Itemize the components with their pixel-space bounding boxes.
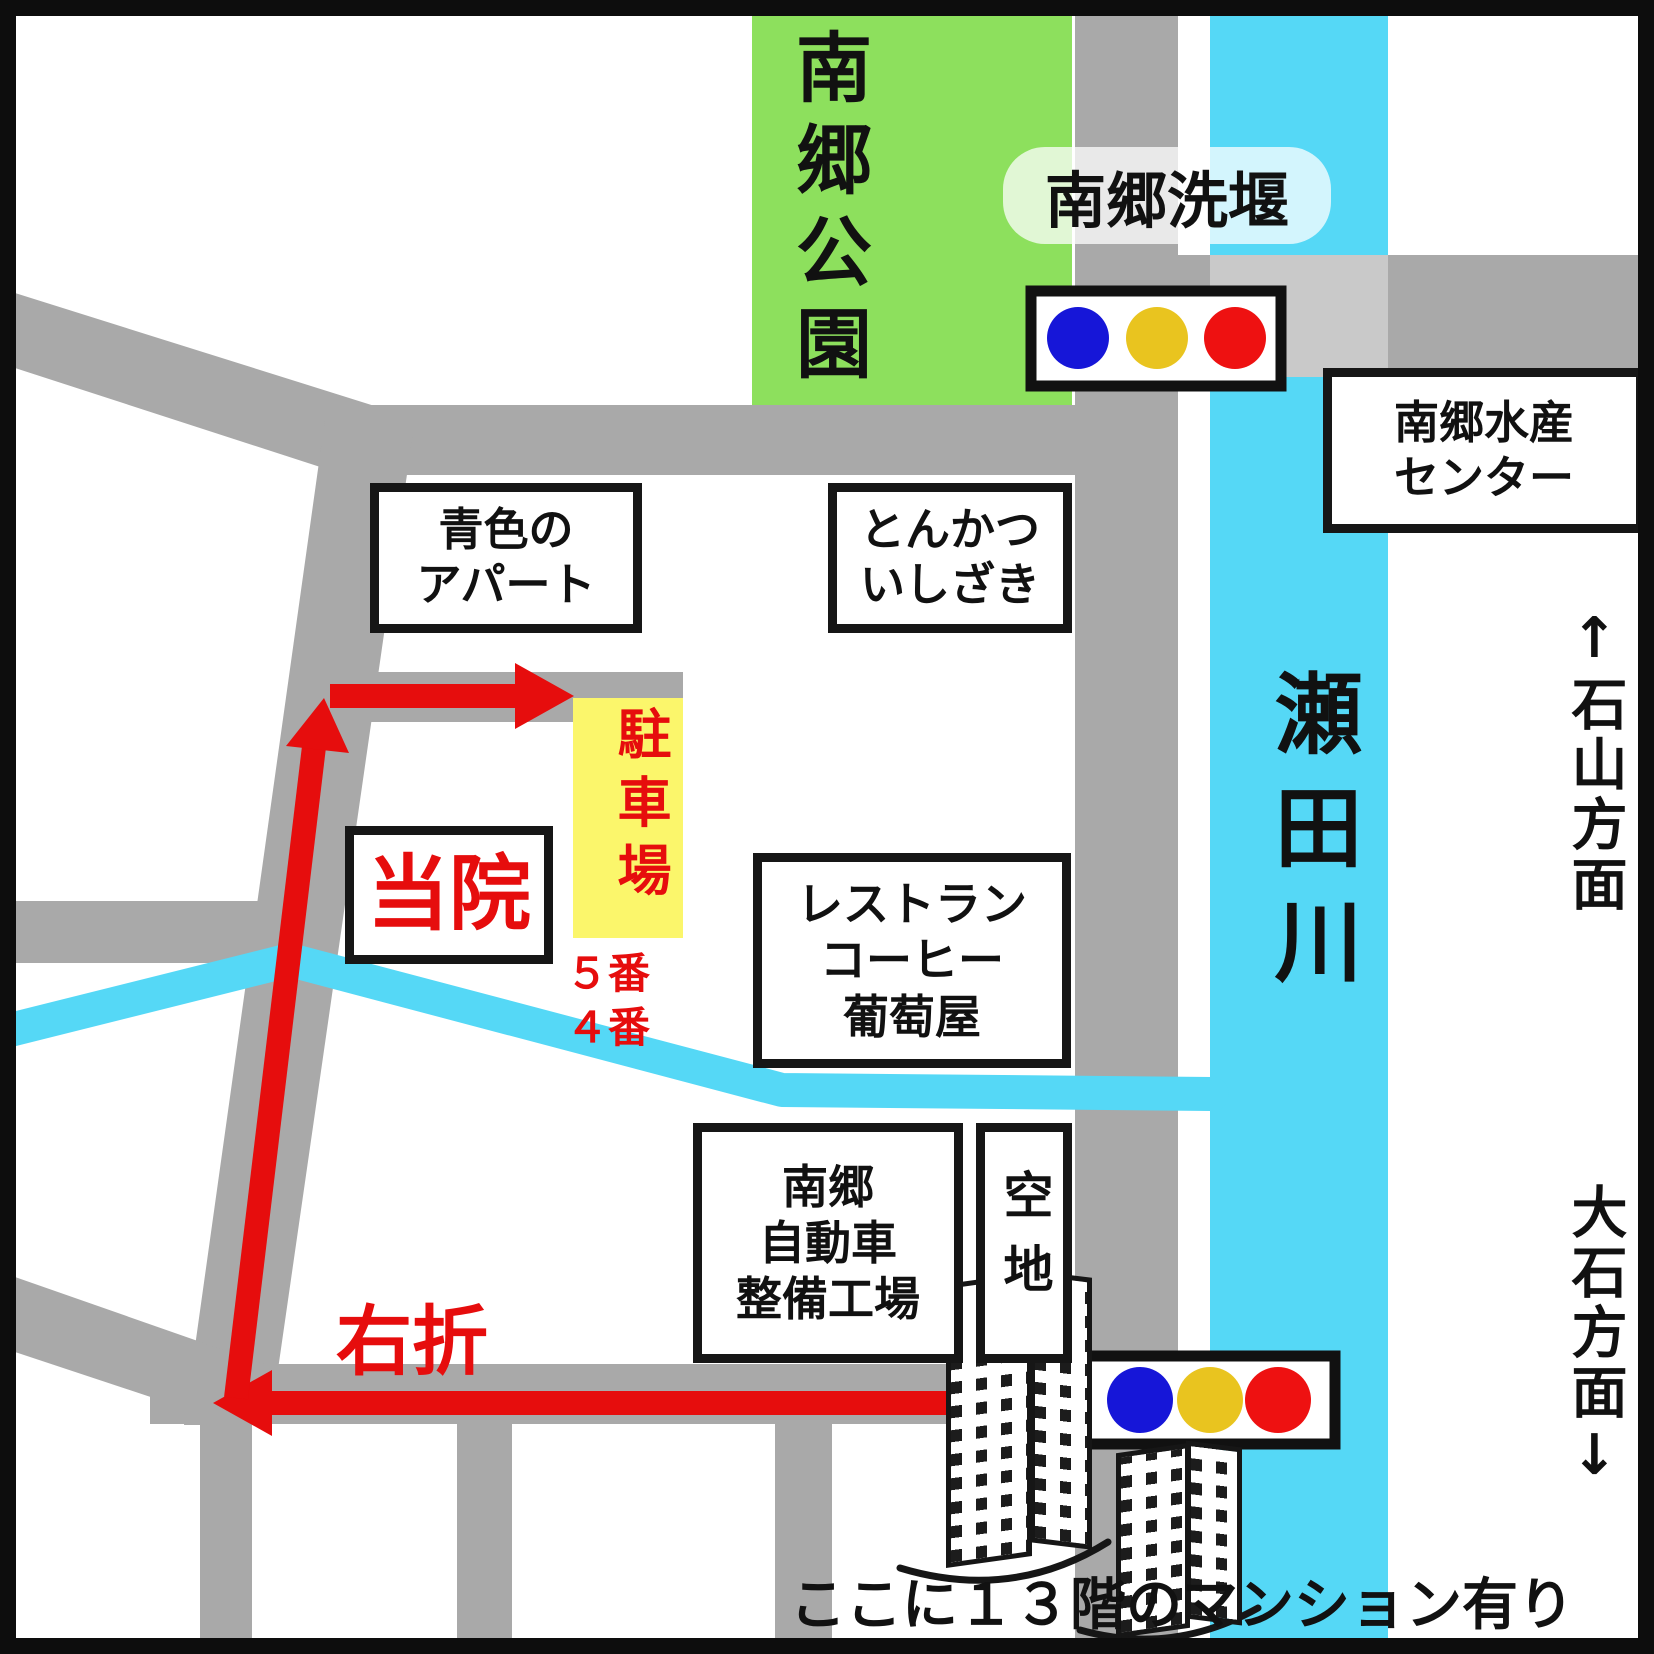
signal-yellow-icon — [1177, 1367, 1243, 1433]
vacant-lot-box: 空地 — [976, 1123, 1072, 1363]
restaurant-line2: コーヒー — [820, 932, 1004, 988]
tonkatsu-line2: いしざき — [860, 558, 1040, 613]
restaurant-box: レストラン コーヒー 葡萄屋 — [753, 853, 1071, 1068]
garage-box: 南郷 自動車 整備工場 — [693, 1123, 963, 1363]
apartment-box: 青色の アパート — [370, 483, 642, 633]
restaurant-line3: 葡萄屋 — [843, 989, 981, 1045]
signal-yellow-icon — [1126, 307, 1188, 369]
access-map: 南郷公園 南郷洗堰 南郷水産 センター ↑石山方面 大石方面↓ 瀬田川 青色の … — [0, 0, 1654, 1654]
fisheries-center-box: 南郷水産 センター — [1323, 368, 1645, 533]
apartment-line2: アパート — [416, 558, 595, 613]
clinic-label: 当院 — [367, 845, 531, 945]
traffic-light-bottom — [1083, 1356, 1335, 1444]
fisheries-center-line1: 南郷水産 — [1394, 396, 1574, 451]
fisheries-center-line2: センター — [1394, 451, 1574, 506]
traffic-light-top — [1031, 291, 1281, 386]
road-stub-1 — [200, 1420, 252, 1639]
restaurant-line1: レストラン — [797, 876, 1027, 932]
garage-line2: 自動車 — [759, 1215, 897, 1271]
park-name: 南郷公園 — [772, 28, 882, 396]
river-name: 瀬田川 — [1248, 668, 1375, 1010]
direction-oishi: 大石方面↓ — [1554, 1183, 1635, 1492]
signal-red-icon — [1204, 307, 1266, 369]
signal-red-icon — [1245, 1367, 1311, 1433]
apartment-line1: 青色の — [438, 503, 573, 558]
parking-slot-5: ５番 — [566, 940, 650, 1001]
road-top-horizontal — [340, 405, 1075, 475]
weir-label: 南郷洗堰 — [1003, 147, 1331, 244]
signal-blue-icon — [1047, 307, 1109, 369]
tonkatsu-line1: とんかつ — [860, 503, 1040, 558]
garage-line3: 整備工場 — [736, 1271, 920, 1327]
turn-right-label: 右折 — [336, 1280, 488, 1390]
road-east-right-piece — [1388, 255, 1639, 377]
parking-slot-4: ４番 — [566, 994, 650, 1055]
direction-ishiyama: ↑石山方面 — [1554, 606, 1635, 915]
garage-line1: 南郷 — [782, 1159, 874, 1215]
clinic-box: 当院 — [345, 826, 553, 964]
signal-blue-icon — [1107, 1367, 1173, 1433]
road-stub-2 — [457, 1420, 512, 1639]
vacant-lot-label: 空地 — [994, 1169, 1055, 1317]
mansion-note: ここに１３階のマンション有り — [790, 1560, 1574, 1641]
tonkatsu-box: とんかつ いしざき — [828, 483, 1072, 633]
parking-label: 駐車場 — [600, 706, 679, 910]
